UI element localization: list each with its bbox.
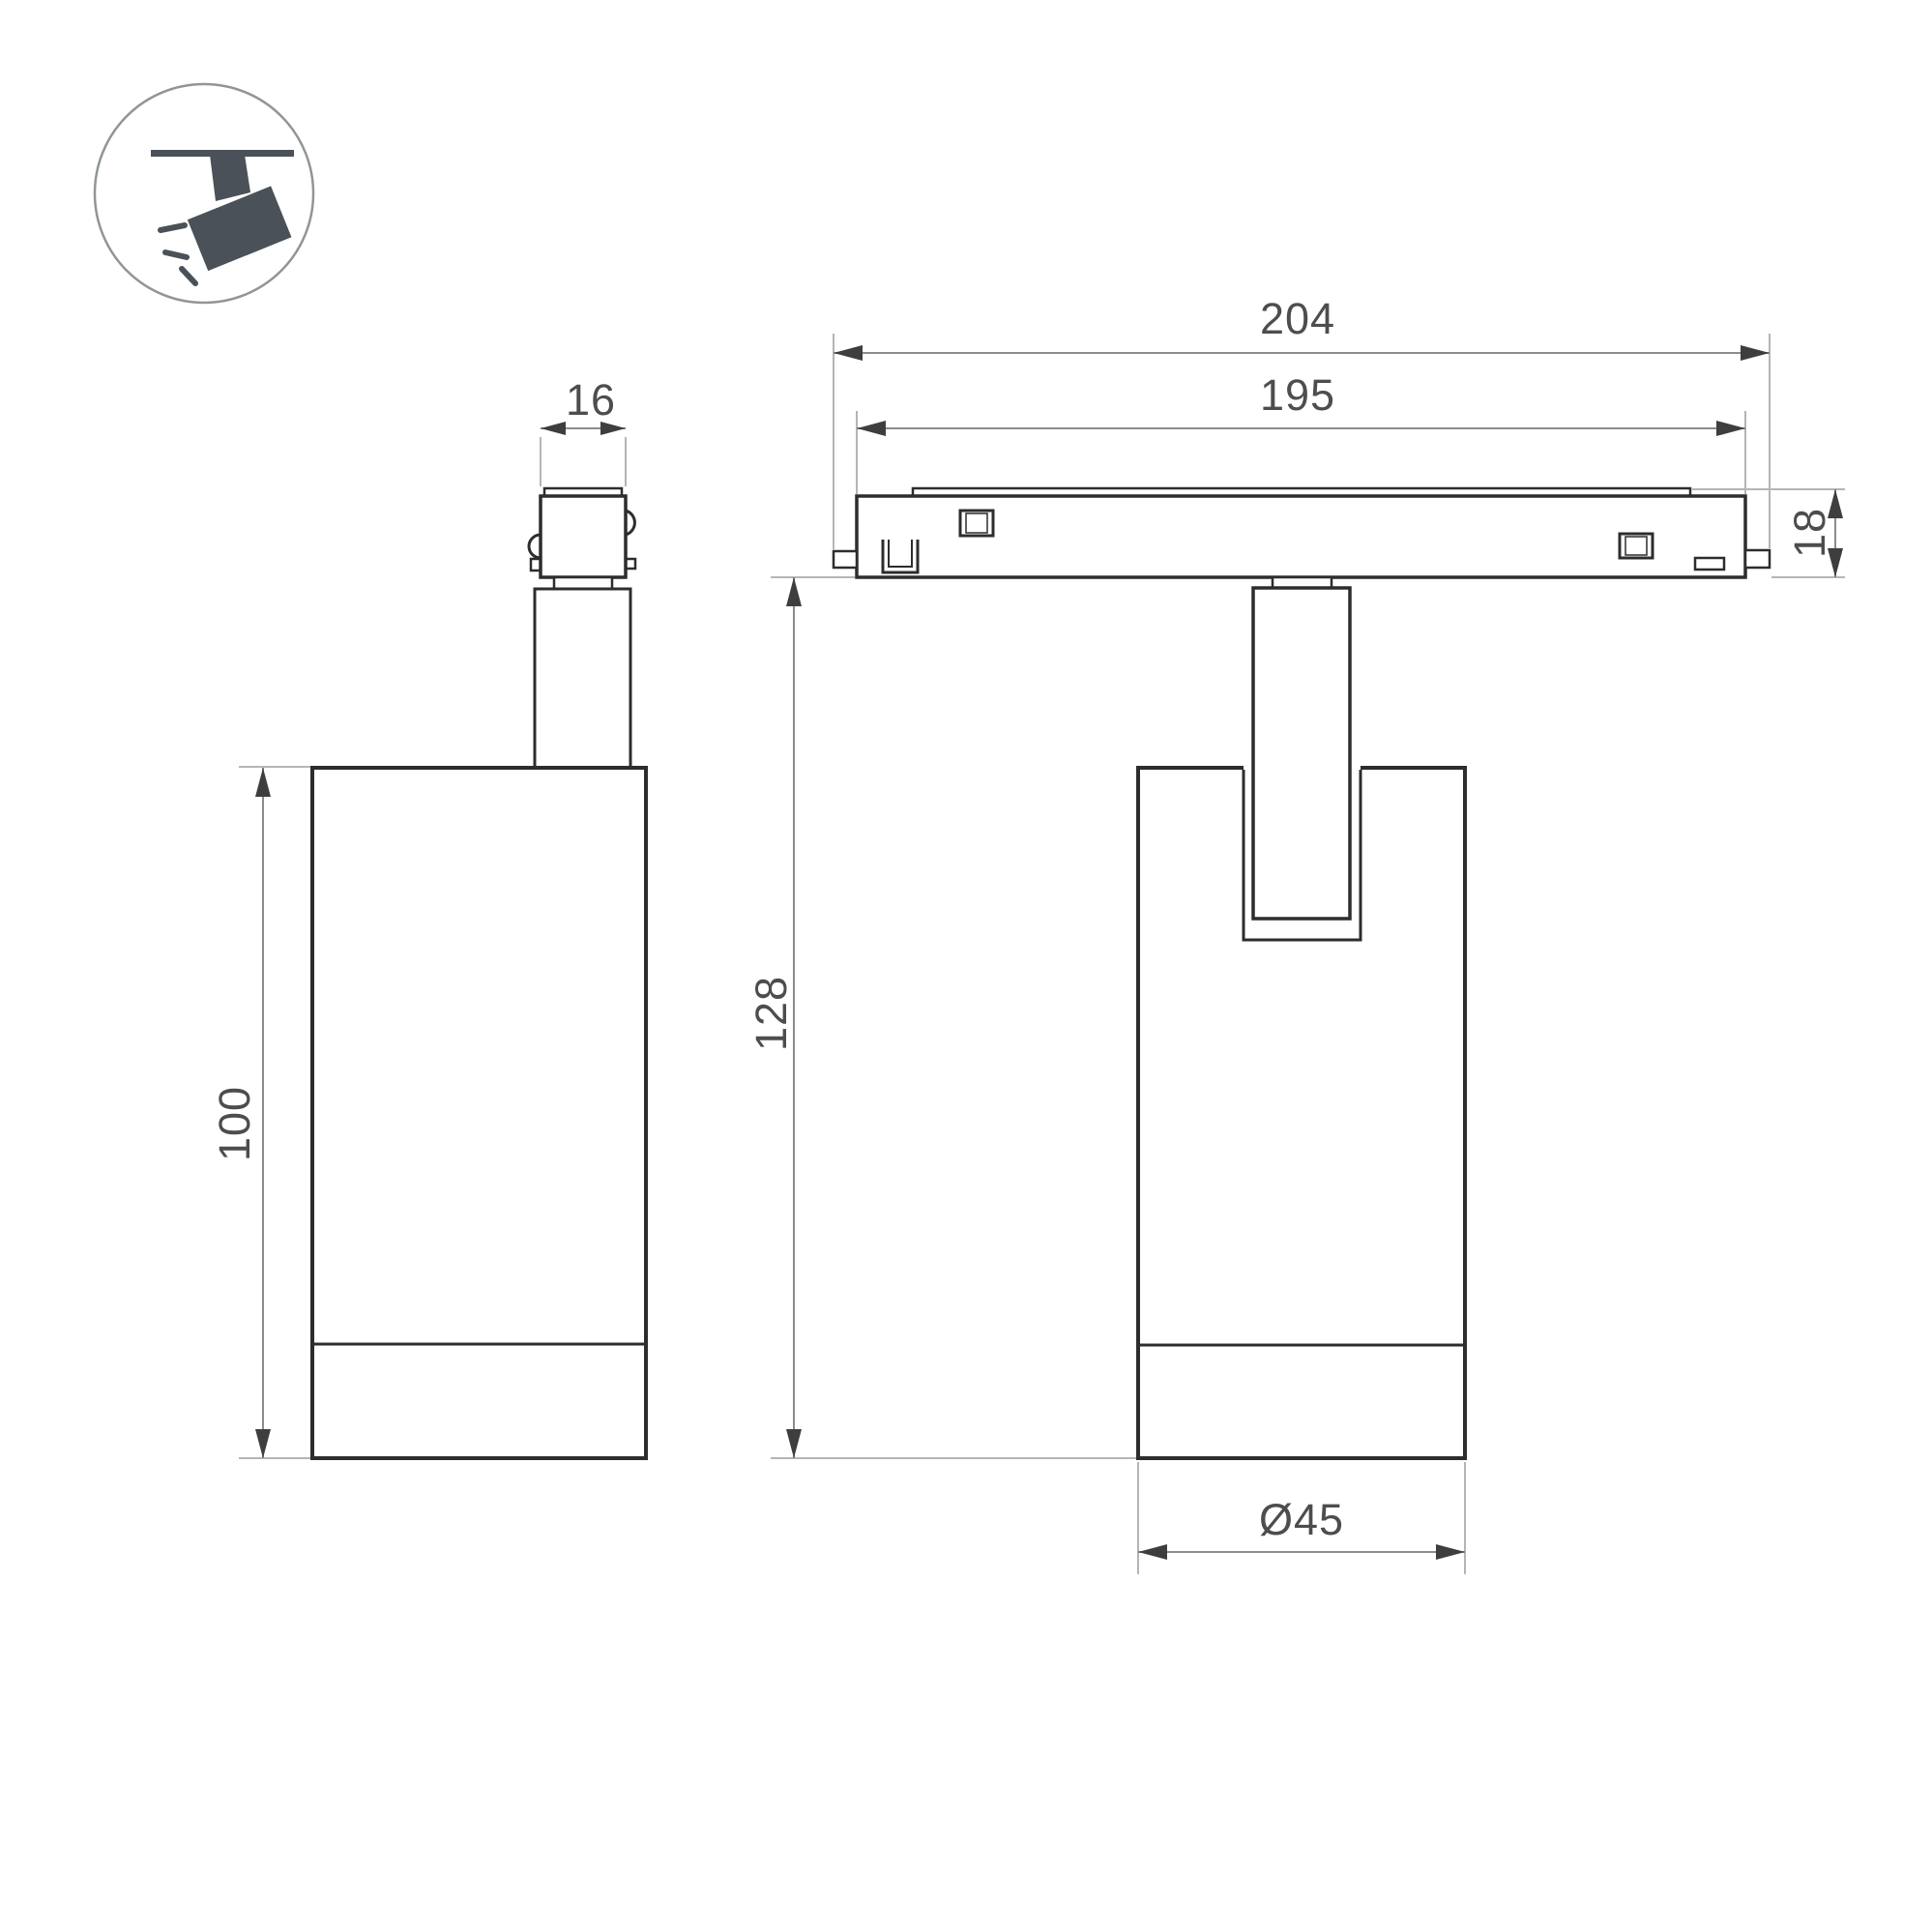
side-adapter-spring-left bbox=[529, 535, 541, 558]
side-lamp-body bbox=[312, 768, 646, 1458]
track-spotlight-icon bbox=[95, 84, 313, 303]
icon-circle bbox=[95, 84, 313, 303]
dim-label-track-body-length: 195 bbox=[1153, 372, 1443, 419]
side-view bbox=[312, 488, 646, 1458]
side-neck bbox=[554, 577, 612, 589]
front-arm bbox=[1253, 588, 1350, 919]
dim-label-adapter-width: 16 bbox=[446, 377, 736, 424]
dim-label-track-overall-length: 204 bbox=[1153, 296, 1443, 342]
front-view bbox=[834, 488, 1770, 1458]
front-track-tab-right bbox=[1745, 550, 1770, 568]
dim-label-body-height: 100 bbox=[212, 979, 258, 1269]
drawing-canvas: 16 204 195 18 100 128 Ø45 bbox=[0, 0, 1932, 1932]
side-arm bbox=[535, 589, 630, 768]
side-adapter-body bbox=[541, 496, 626, 577]
dim-label-overall-height: 128 bbox=[748, 868, 795, 1158]
front-track-tab-left bbox=[834, 551, 857, 568]
dim-label-track-height: 18 bbox=[1787, 388, 1833, 678]
dim-label-body-diameter: Ø45 bbox=[1156, 1497, 1447, 1543]
technical-drawing bbox=[0, 0, 1932, 1932]
